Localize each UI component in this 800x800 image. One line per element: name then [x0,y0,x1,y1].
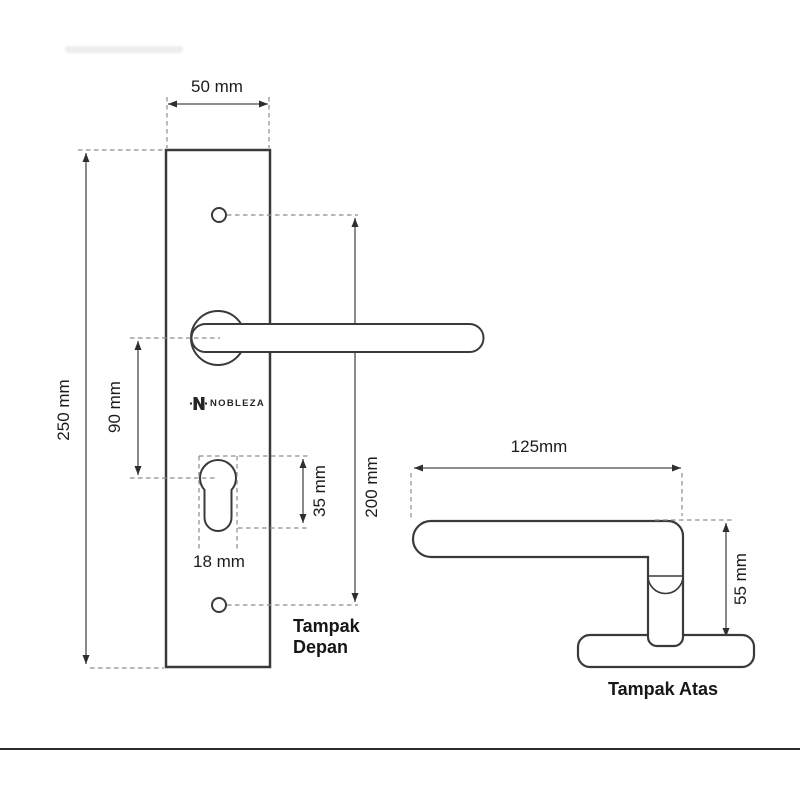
brand-logo-text: NOBLEZA [210,398,265,409]
dim-label-50mm: 50 mm [157,76,277,98]
dim-label-18mm: 18 mm [159,551,279,573]
dim-label-125mm: 125mm [479,436,599,458]
lever-handle-front [192,324,484,352]
brand-logo-n-icon [190,396,207,411]
top-view-title: Tampak Atas [583,679,743,700]
screw-hole-bottom [212,598,226,612]
dim-label-55mm: 55 mm [730,519,752,639]
lever-handle-top [413,521,683,646]
screw-hole-top [212,208,226,222]
dim-label-250mm: 250 mm [53,350,75,470]
technical-drawing-page: 50 mm 250 mm 90 mm 35 mm 18 mm 200 mm 12… [0,0,800,800]
dim-label-35mm: 35 mm [309,431,331,551]
dim-label-90mm: 90 mm [104,347,126,467]
dim-label-200mm: 200 mm [361,427,383,547]
euro-cylinder-keyhole [200,460,236,531]
brand-logo: NOBLEZA [190,396,265,411]
top-view-drawing [413,521,754,667]
front-view-title: Tampak Depan [293,616,383,658]
